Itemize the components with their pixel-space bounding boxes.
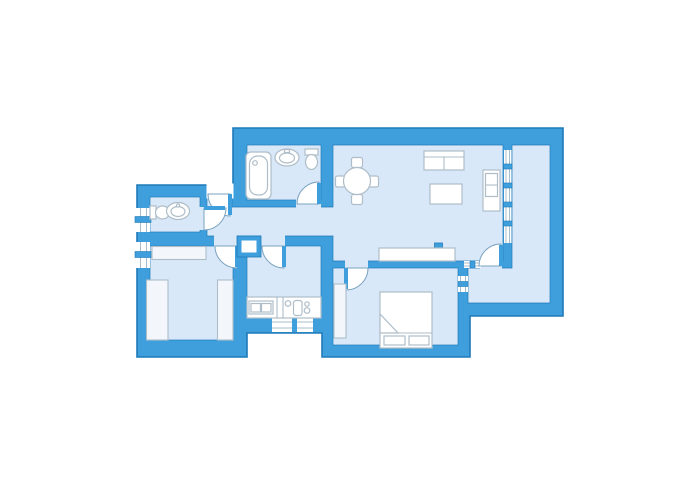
coffee-table	[430, 184, 462, 204]
window	[458, 276, 468, 292]
window	[135, 242, 151, 268]
floor-plan-page	[0, 0, 700, 500]
wardrobe	[152, 247, 206, 260]
bookshelf	[483, 170, 500, 211]
bedroom-left-door-gap	[214, 236, 237, 247]
balcony-window-wall	[504, 150, 513, 243]
wardrobe	[334, 284, 346, 338]
window	[272, 318, 292, 332]
window	[464, 261, 481, 268]
wc-sink	[167, 203, 190, 220]
double-bed	[380, 292, 432, 348]
kitchen-sink	[249, 301, 273, 314]
window	[135, 208, 151, 232]
bathtub	[246, 152, 271, 199]
sideboard	[379, 248, 455, 261]
toilet	[305, 149, 318, 170]
single-bed	[218, 280, 234, 340]
floor-plan-svg	[0, 0, 700, 500]
single-bed	[147, 280, 169, 340]
bathroom-sink	[275, 149, 299, 166]
ventilation-shaft	[237, 236, 261, 257]
kitchen-door-gap	[261, 236, 285, 247]
bedroom-right-door-gap	[345, 261, 368, 269]
sofa	[424, 151, 464, 170]
window	[297, 318, 313, 332]
